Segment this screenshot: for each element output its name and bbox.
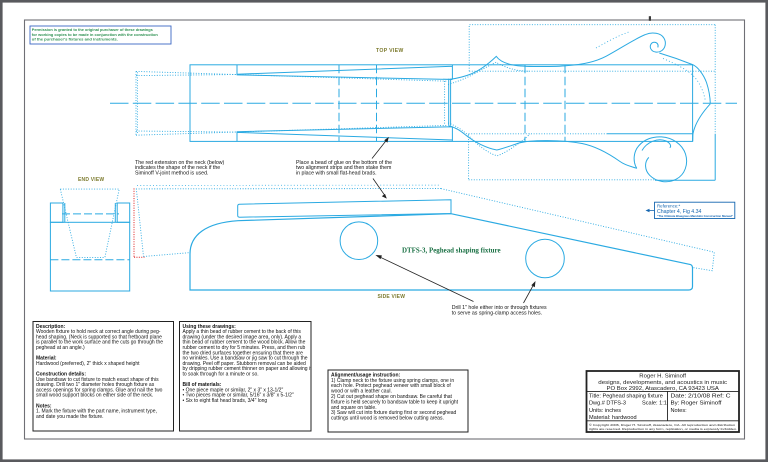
- svg-text:Units: inches: Units: inches: [589, 408, 621, 414]
- svg-text:and date you made the fixture.: and date you made the fixture.: [36, 414, 104, 420]
- svg-text:Roger H. Siminoff: Roger H. Siminoff: [639, 374, 686, 380]
- svg-text:Dwg.# DTFS-3: Dwg.# DTFS-3: [589, 401, 626, 407]
- svg-text:small wood support blocks on e: small wood support blocks on either side…: [36, 393, 153, 399]
- svg-text:to serve as spring-clamp acces: to serve as spring-clamp access holes.: [452, 311, 542, 317]
- svg-text:of the purchaser's fixtures an: of the purchaser's fixtures and instrume…: [32, 37, 118, 42]
- svg-text:Hardwood (preferred), 2" thick: Hardwood (preferred), 2" thick x shaped …: [36, 361, 140, 367]
- svg-text:Reference:*: Reference:*: [657, 203, 680, 208]
- svg-text:Scale: 1:1: Scale: 1:1: [642, 401, 667, 407]
- svg-text:• Six to eight flat head brads: • Six to eight flat head brads, 3/4" lon…: [183, 398, 268, 404]
- svg-text:Title: Peghead shaping fixture: Title: Peghead shaping fixture: [589, 393, 663, 399]
- svg-text:in place with small flat-head: in place with small flat-head brads.: [296, 170, 377, 176]
- svg-text:By: Roger Siminoff: By: Roger Siminoff: [671, 401, 722, 407]
- svg-text:Material: hardwood: Material: hardwood: [589, 415, 637, 421]
- svg-text:to soak through for a minute o: to soak through for a minute or so.: [183, 372, 259, 378]
- svg-text:Date: 2/10/08 Ref: C: Date: 2/10/08 Ref: C: [671, 393, 731, 399]
- svg-text:TOP VIEW: TOP VIEW: [376, 48, 404, 54]
- svg-text:END VIEW: END VIEW: [78, 177, 104, 183]
- svg-text:SIDE VIEW: SIDE VIEW: [378, 294, 406, 300]
- svg-text:peghead at an angle.): peghead at an angle.): [36, 345, 85, 351]
- svg-text:designs, developments, and aco: designs, developments, and acoustics in …: [598, 380, 727, 386]
- svg-text:cuttings until wood is removed: cuttings until wood is removed below cut…: [331, 416, 444, 422]
- svg-text:Notes:: Notes:: [671, 408, 688, 414]
- svg-text:Siminoff V-joint method is use: Siminoff V-joint method is used.: [135, 170, 208, 176]
- svg-text:rights are reserved. Reproduct: rights are reserved. Reproduction in any…: [589, 427, 737, 431]
- svg-text:DTFS-3, Peghead shaping fixtur: DTFS-3, Peghead shaping fixture: [402, 247, 501, 255]
- svg-text:"The Ultimate Bluegrass Mandol: "The Ultimate Bluegrass Mandolin Constru…: [657, 214, 734, 218]
